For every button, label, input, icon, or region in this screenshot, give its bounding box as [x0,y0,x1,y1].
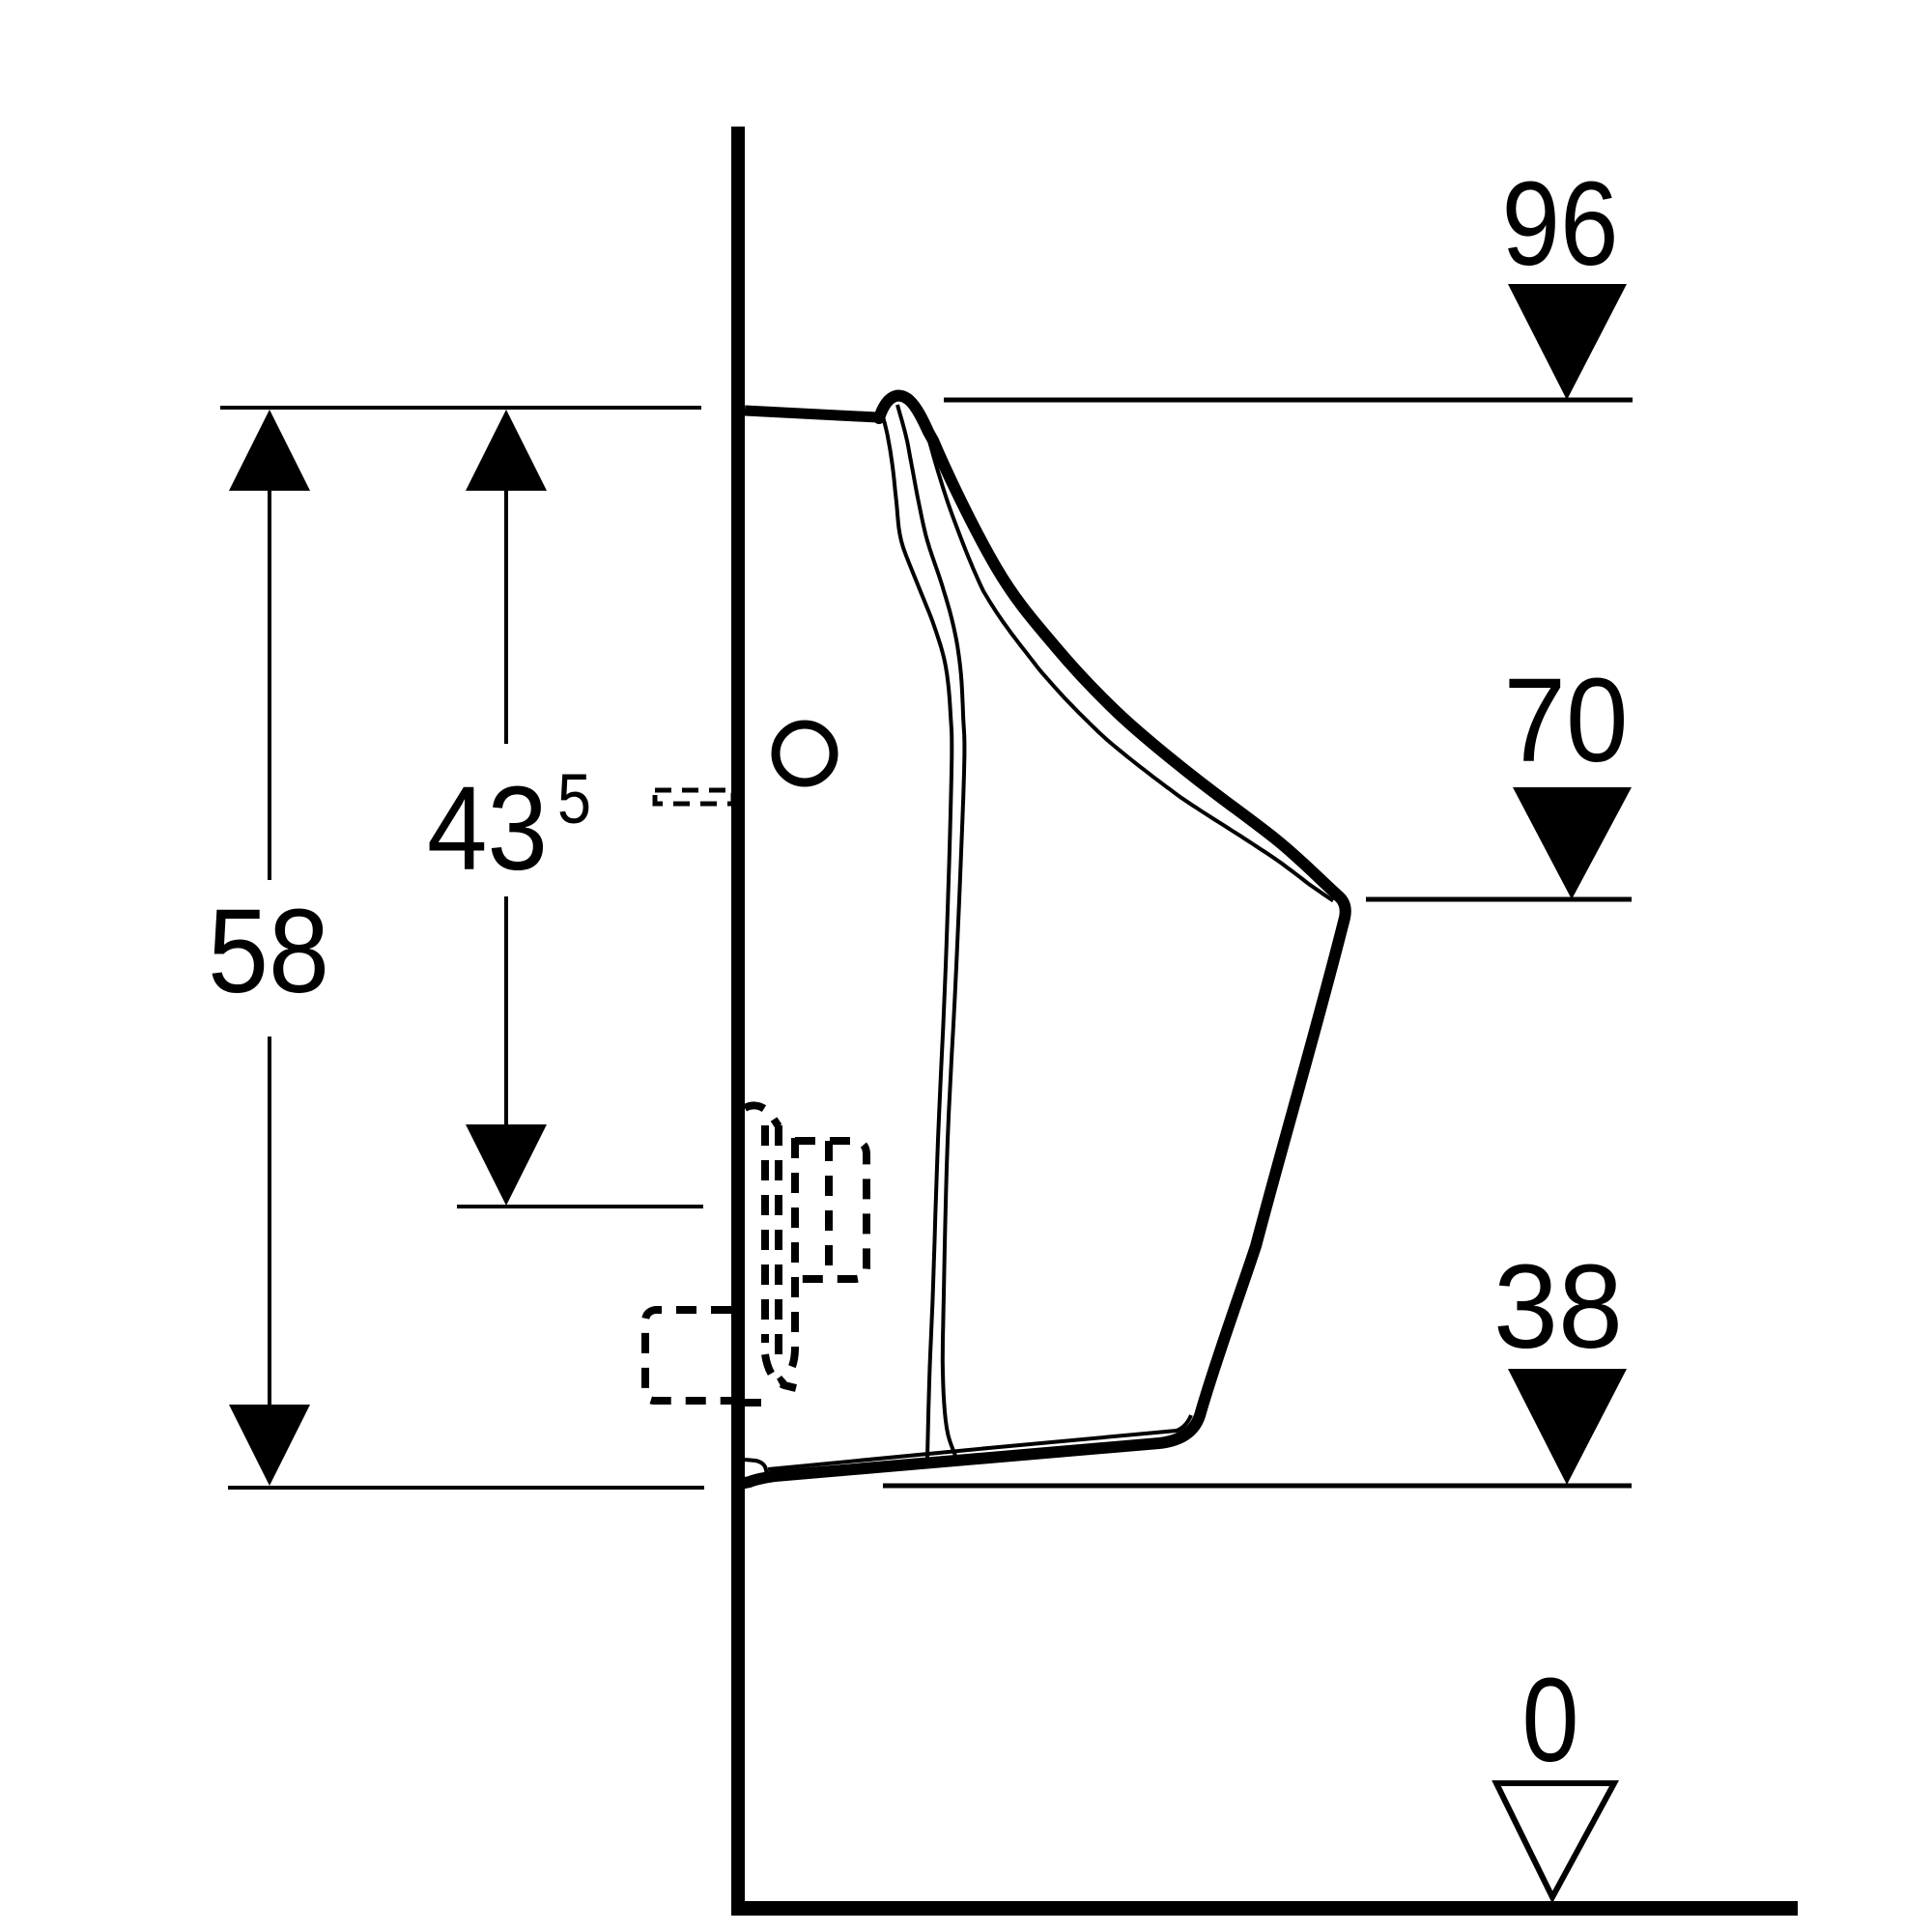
svg-text:43: 43 [427,763,548,895]
svg-text:38: 38 [1493,1241,1623,1374]
svg-text:58: 58 [208,886,329,1018]
svg-text:0: 0 [1522,1655,1579,1787]
svg-text:5: 5 [557,760,591,838]
svg-text:70: 70 [1504,655,1629,787]
svg-text:96: 96 [1502,158,1619,291]
